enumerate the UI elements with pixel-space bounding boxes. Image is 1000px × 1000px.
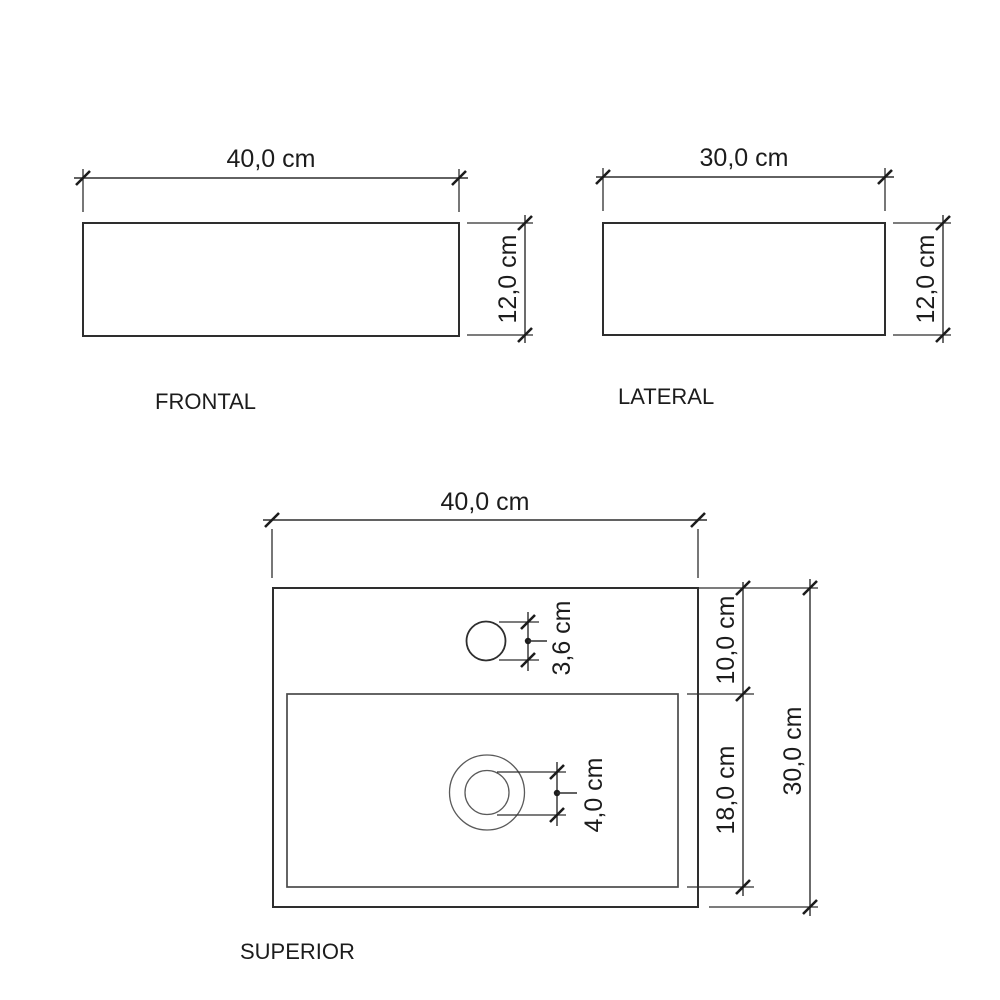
lateral-height-dimension: 12,0 cm (893, 215, 951, 343)
lateral-height-value: 12,0 cm (912, 235, 940, 324)
frontal-view-label: FRONTAL (155, 389, 256, 414)
frontal-height-value: 12,0 cm (494, 235, 522, 324)
technical-drawing-sheet: 40,0 cm 12,0 cm FRONTAL 30,0 cm (0, 0, 1000, 1000)
superior-depth-dimensions: 10,0 cm 18,0 cm 30,0 cm (687, 579, 818, 916)
frontal-outline (83, 223, 459, 336)
faucet-hole-value: 3,6 cm (548, 600, 576, 675)
frontal-height-dimension: 12,0 cm (467, 215, 533, 343)
lateral-width-value: 30,0 cm (700, 144, 789, 172)
faucet-hole (467, 622, 506, 661)
superior-width-value: 40,0 cm (441, 488, 530, 516)
total-depth-value: 30,0 cm (779, 707, 807, 796)
superior-view-label: SUPERIOR (240, 939, 355, 964)
drain-diameter-value: 4,0 cm (580, 757, 608, 832)
frontal-width-value: 40,0 cm (227, 145, 316, 173)
lateral-view-label: LATERAL (618, 384, 714, 409)
superior-width-dimension: 40,0 cm (263, 488, 707, 578)
superior-view: 40,0 cm 3,6 cm 4,0 cm (240, 488, 818, 964)
lateral-width-dimension: 30,0 cm (596, 144, 894, 211)
faucet-band-depth-value: 10,0 cm (712, 596, 740, 685)
lateral-outline (603, 223, 885, 335)
frontal-width-dimension: 40,0 cm (74, 145, 468, 212)
frontal-view: 40,0 cm 12,0 cm FRONTAL (74, 145, 533, 414)
basin-depth-value: 18,0 cm (712, 746, 740, 835)
lateral-view: 30,0 cm 12,0 cm LATERAL (596, 144, 951, 409)
drawing-svg: 40,0 cm 12,0 cm FRONTAL 30,0 cm (0, 0, 1000, 1000)
